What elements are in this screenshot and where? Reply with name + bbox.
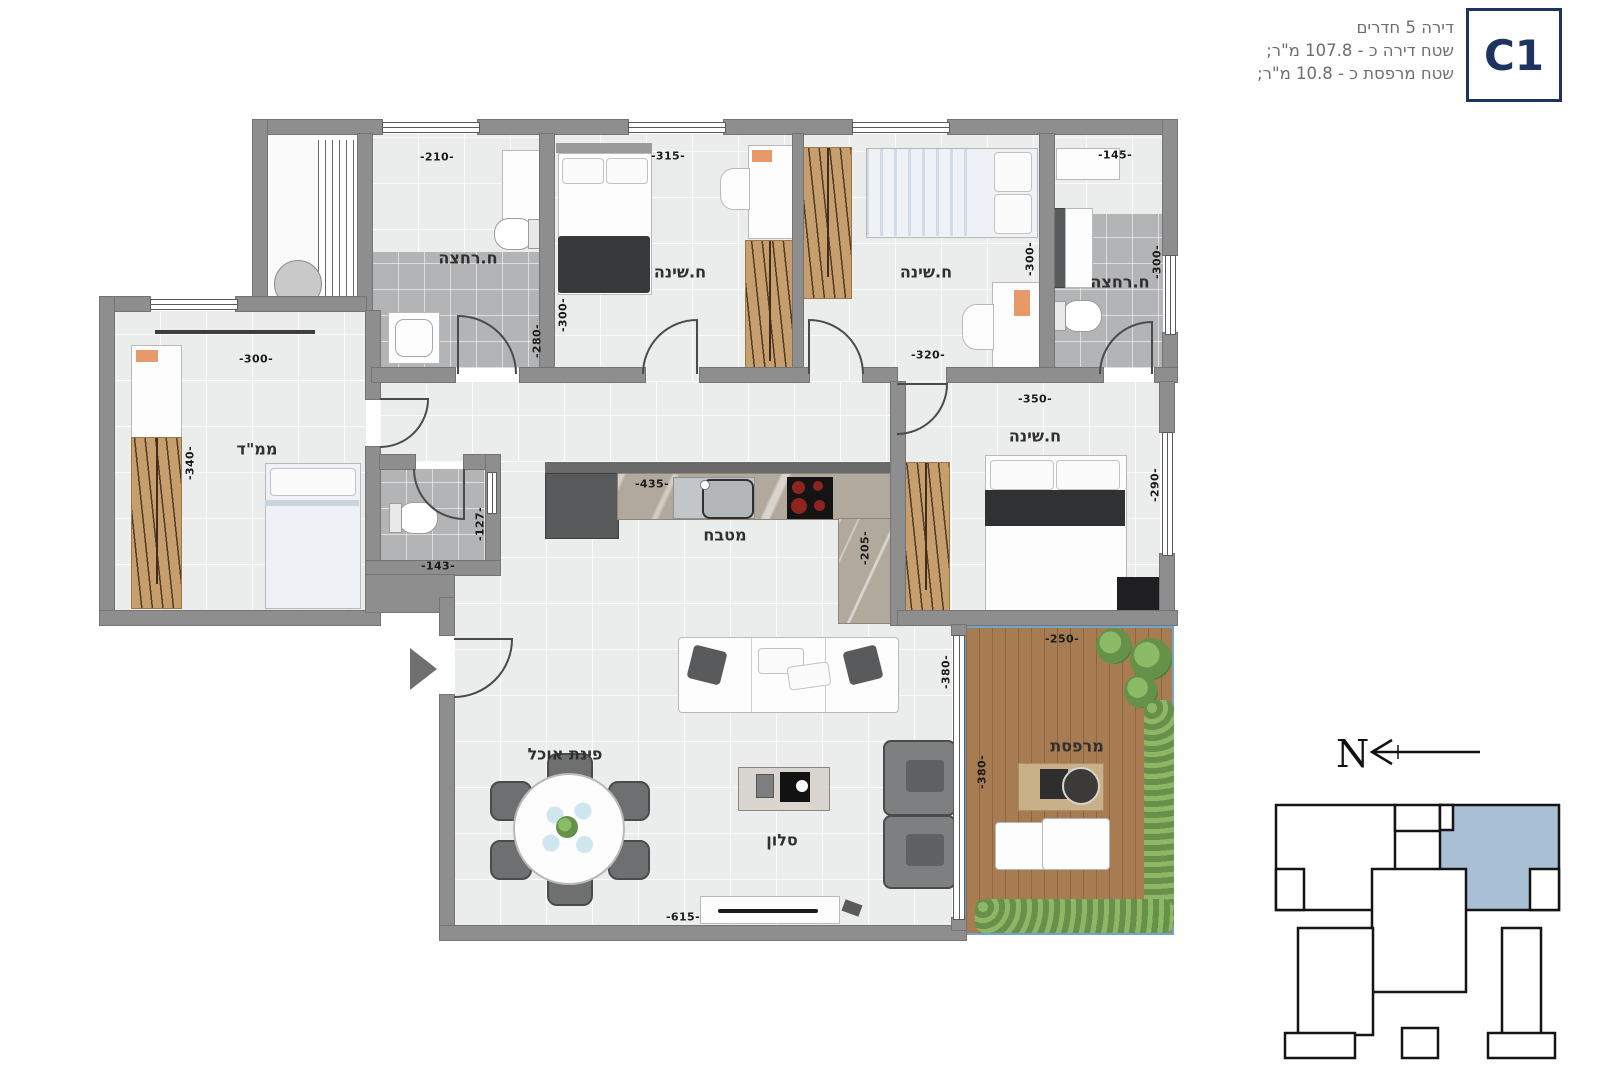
bed-blanket-dark	[985, 490, 1125, 526]
window	[1165, 255, 1176, 335]
keyplan-core	[1372, 869, 1466, 992]
dim-living-width: -615-	[666, 911, 700, 924]
dim-wc-width: -143-	[421, 560, 455, 573]
keyplan-foot	[1402, 1028, 1438, 1058]
dim-safe-room-width: -300-	[239, 353, 273, 366]
table-decor	[756, 774, 774, 798]
wardrobe-bedroom1	[745, 240, 795, 382]
wall	[253, 120, 382, 134]
dim-bathroom2-width: -145-	[1098, 149, 1132, 162]
armchair-pillow	[906, 834, 944, 866]
keyplan-foot	[1488, 1033, 1555, 1058]
fridge	[545, 473, 619, 539]
north-arrow-head	[1372, 740, 1392, 764]
bed-pillow	[994, 152, 1032, 192]
balcony-area-text: שטח מרפסת כ - 10.8 מ"ר;	[1124, 62, 1454, 85]
wall	[372, 368, 455, 382]
burner	[813, 481, 823, 491]
outdoor-lounge-chair	[1042, 818, 1110, 870]
bed-blanket-folds	[866, 148, 976, 236]
table-centerpiece	[556, 816, 578, 838]
tray-decor	[796, 780, 808, 792]
key-plan	[1242, 788, 1572, 1067]
wardrobe-bedroom2	[803, 147, 852, 299]
cabinet-bathroom2	[1052, 208, 1066, 288]
hallway-floor	[380, 382, 891, 462]
bed-fold-line	[265, 500, 359, 506]
wall	[520, 368, 645, 382]
wall	[863, 368, 897, 382]
dim-balcony-width: -250-	[1045, 633, 1079, 646]
keyplan-wing	[1276, 805, 1395, 910]
bed-blanket-dark	[558, 236, 650, 293]
north-arrow: N	[1300, 715, 1500, 785]
label-dining: פינת אוכל	[528, 745, 603, 764]
dim-bedroom2-width: -320-	[911, 349, 945, 362]
faucet	[700, 480, 710, 490]
dim-wc-height: -127-	[474, 507, 487, 541]
bed-pillow	[994, 194, 1032, 234]
floorplan-page: דירה 5 חדרים שטח דירה כ - 107.8 מ"ר; שטח…	[0, 0, 1600, 1067]
label-bedroom2: ח.שינה	[900, 263, 952, 282]
wall	[1040, 134, 1054, 380]
dim-bedroom1-height: -300-	[557, 298, 570, 332]
dim-bathroom2-height: -300-	[1151, 245, 1164, 279]
label-bathroom2: ח.רחצה	[1090, 273, 1149, 292]
burner	[814, 500, 825, 511]
bed-pillow	[270, 468, 356, 496]
armchair-pillow	[906, 760, 944, 792]
service-balcony-louvers	[318, 140, 358, 300]
wall	[253, 120, 267, 310]
bed-pillow	[990, 460, 1054, 490]
balcony-coffee-table	[1062, 767, 1100, 805]
window	[1162, 432, 1173, 556]
wall	[793, 134, 803, 382]
label-bathroom1: ח.רחצה	[438, 249, 497, 268]
wall	[440, 598, 454, 635]
bed-pillow	[606, 158, 648, 184]
bed-pillow	[562, 158, 604, 184]
apartment-type-text: דירה 5 חדרים	[1124, 16, 1454, 39]
wall	[898, 611, 1177, 625]
apartment-area-text: שטח דירה כ - 107.8 מ"ר;	[1124, 39, 1454, 62]
toilet-tank	[1053, 301, 1066, 331]
dim-kitchen-width: -435-	[635, 478, 669, 491]
wardrobe-master	[901, 462, 950, 612]
window	[150, 299, 238, 310]
desk-accent	[1014, 290, 1030, 316]
wall	[724, 120, 852, 134]
desk-chair	[720, 168, 750, 210]
window	[852, 122, 950, 133]
kitchen-backsplash	[545, 462, 891, 473]
dim-master-width: -350-	[1018, 393, 1052, 406]
label-master-bedroom: ח.שינה	[1009, 427, 1061, 446]
wardrobe-safe-room	[131, 437, 182, 609]
wall	[1155, 368, 1177, 382]
desk-accent	[752, 150, 772, 162]
entry-arrow-icon	[410, 648, 437, 690]
keyplan-wing	[1502, 928, 1541, 1035]
wall	[380, 455, 415, 469]
window	[628, 122, 726, 133]
wall	[891, 382, 905, 625]
dim-bathroom1-height: -280-	[531, 324, 544, 358]
wall	[236, 297, 366, 311]
keyplan-unit-highlight	[1440, 805, 1559, 910]
dim-kitchen-height: -205-	[859, 531, 872, 565]
unit-code-badge: C1	[1466, 8, 1562, 102]
dim-bedroom1-width: -315-	[651, 150, 685, 163]
keyplan-recess	[1395, 805, 1440, 831]
north-label: N	[1336, 732, 1369, 776]
wall	[100, 611, 380, 625]
desk-master	[1117, 577, 1160, 610]
sliding-glass-door	[953, 635, 965, 920]
dim-master-height: -290-	[1149, 468, 1162, 502]
wall	[366, 447, 380, 575]
wall	[1163, 120, 1177, 255]
wall	[947, 368, 1103, 382]
window	[487, 472, 497, 514]
wall	[358, 134, 372, 311]
keyplan-notch	[1440, 805, 1453, 830]
balcony-hedge-bottom	[975, 899, 1173, 933]
label-bedroom1: ח.שינה	[654, 263, 706, 282]
label-balcony: מרפסת	[1050, 737, 1104, 756]
wall	[440, 695, 454, 940]
tv	[718, 909, 818, 913]
wall	[1160, 382, 1174, 432]
window	[382, 122, 480, 133]
bed-headboard	[556, 143, 652, 153]
window-track	[155, 330, 315, 334]
keyplan-notch	[1276, 869, 1304, 910]
bed-pillow	[1056, 460, 1120, 490]
toilet-wc	[398, 502, 438, 534]
keyplan-wing	[1298, 928, 1373, 1035]
keyplan-notch	[1530, 869, 1559, 910]
wall	[366, 311, 380, 399]
toilet-bathroom2	[1062, 300, 1102, 332]
wall	[100, 297, 114, 625]
burner	[792, 481, 805, 494]
wall	[440, 926, 966, 940]
keyplan-foot	[1285, 1033, 1355, 1058]
dim-living-height: -380-	[940, 655, 953, 689]
desk-chair	[962, 304, 994, 350]
plan-header: דירה 5 חדרים שטח דירה כ - 107.8 מ"ר; שטח…	[1124, 16, 1454, 85]
wall	[948, 120, 1177, 134]
toilet-tank	[389, 503, 402, 533]
burner	[791, 498, 807, 514]
wall	[700, 368, 809, 382]
dim-bathroom1-width: -210-	[420, 151, 454, 164]
label-living: סלון	[766, 831, 798, 850]
balcony-plant	[1096, 628, 1132, 664]
dim-bedroom2-height: -300-	[1024, 242, 1037, 276]
vanity-bathroom2	[1065, 208, 1093, 288]
dim-safe-room-height: -340-	[184, 446, 197, 480]
wall	[478, 120, 628, 134]
shower-tray	[395, 319, 433, 357]
dim-balcony-height: -380-	[976, 755, 989, 789]
desk-accent	[136, 350, 158, 362]
label-safe-room: ממ"ד	[237, 440, 278, 459]
unit-code-label: C1	[1484, 31, 1544, 80]
label-kitchen: מטבח	[703, 526, 746, 545]
wall	[952, 625, 966, 635]
